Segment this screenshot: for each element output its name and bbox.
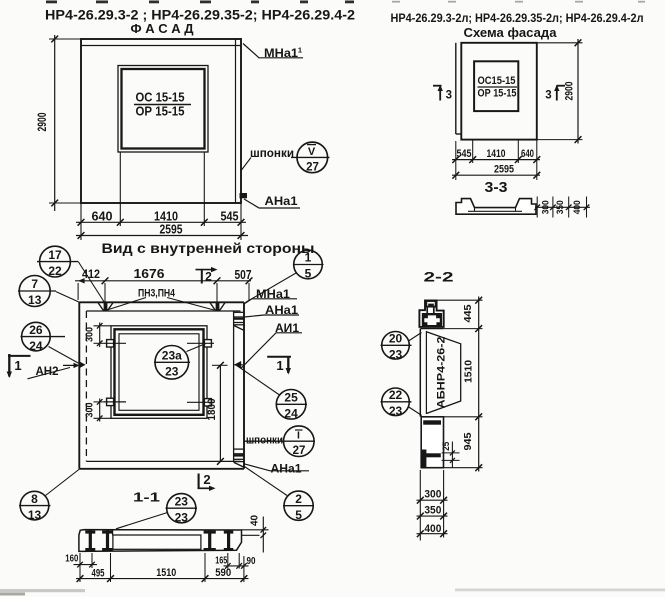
svg-text:ОС 15-15: ОС 15-15 xyxy=(136,90,185,105)
svg-text:300: 300 xyxy=(85,402,96,417)
svg-text:шпонки: шпонки xyxy=(250,148,294,160)
svg-text:І: І xyxy=(297,430,300,442)
svg-text:640: 640 xyxy=(92,208,113,223)
svg-text:25: 25 xyxy=(441,441,452,451)
svg-text:165: 165 xyxy=(215,555,227,566)
svg-text:Вид с внутренней стороны: Вид с внутренней стороны xyxy=(102,240,315,256)
svg-text:22: 22 xyxy=(48,264,62,278)
svg-text:1410: 1410 xyxy=(487,148,506,160)
svg-text:2900: 2900 xyxy=(564,82,576,101)
svg-text:160: 160 xyxy=(65,553,78,564)
svg-text:300: 300 xyxy=(84,327,95,342)
svg-text:АНа1: АНа1 xyxy=(265,194,298,208)
svg-text:90: 90 xyxy=(247,556,256,567)
svg-text:V: V xyxy=(308,146,316,158)
svg-text:400: 400 xyxy=(572,200,583,214)
svg-text:27: 27 xyxy=(306,161,319,173)
svg-text:640: 640 xyxy=(521,148,534,160)
svg-text:АБНР4-26-2: АБНР4-26-2 xyxy=(436,337,448,409)
svg-text:1676: 1676 xyxy=(134,266,165,281)
svg-text:13: 13 xyxy=(28,293,42,307)
svg-text:шпонки: шпонки xyxy=(246,434,283,446)
svg-text:40: 40 xyxy=(250,515,261,526)
svg-text:2: 2 xyxy=(295,492,302,506)
svg-text:23: 23 xyxy=(175,494,189,508)
svg-text:1: 1 xyxy=(276,358,283,373)
svg-text:300: 300 xyxy=(540,200,551,214)
svg-text:545: 545 xyxy=(457,148,472,160)
svg-text:300: 300 xyxy=(424,489,441,501)
svg-text:25: 25 xyxy=(284,391,298,405)
svg-text:23: 23 xyxy=(389,404,403,418)
svg-text:1800: 1800 xyxy=(206,399,218,421)
svg-text:23: 23 xyxy=(165,365,179,379)
svg-text:ОР 15-15: ОР 15-15 xyxy=(136,104,185,119)
svg-text:2: 2 xyxy=(205,270,212,284)
svg-text:Схема фасада: Схема фасада xyxy=(464,26,558,40)
svg-text:23: 23 xyxy=(175,510,189,524)
svg-text:22: 22 xyxy=(389,388,403,402)
svg-text:ПН3,ПН4: ПН3,ПН4 xyxy=(138,287,176,299)
svg-text:1510: 1510 xyxy=(156,567,176,579)
svg-text:3: 3 xyxy=(545,90,551,102)
svg-text:1410: 1410 xyxy=(154,208,178,223)
svg-text:Ф А С А Д: Ф А С А Д xyxy=(131,21,195,36)
svg-text:24: 24 xyxy=(29,339,43,353)
svg-text:1: 1 xyxy=(298,46,302,55)
svg-text:26: 26 xyxy=(29,323,43,337)
svg-text:23а: 23а xyxy=(162,349,182,363)
svg-text:445: 445 xyxy=(462,304,474,322)
svg-text:2: 2 xyxy=(203,472,210,487)
svg-text:1: 1 xyxy=(305,251,312,265)
svg-text:7: 7 xyxy=(31,277,38,291)
svg-text:2-2: 2-2 xyxy=(424,269,454,285)
svg-text:ОР 15-15: ОР 15-15 xyxy=(478,88,517,100)
svg-text:23: 23 xyxy=(389,348,403,362)
svg-text:24: 24 xyxy=(284,407,298,421)
svg-text:350: 350 xyxy=(424,505,441,517)
svg-text:1510: 1510 xyxy=(463,360,475,383)
svg-text:НР4-26.29.3-2л; НР4-26.29.35-2: НР4-26.29.3-2л; НР4-26.29.35-2л; НР4-26.… xyxy=(391,11,644,25)
svg-text:27: 27 xyxy=(293,445,306,457)
svg-text:1: 1 xyxy=(14,358,21,373)
svg-text:5: 5 xyxy=(305,267,312,281)
svg-text:5: 5 xyxy=(295,508,302,522)
svg-text:17: 17 xyxy=(48,248,62,262)
svg-text:8: 8 xyxy=(31,492,38,506)
svg-text:20: 20 xyxy=(389,332,403,346)
svg-text:400: 400 xyxy=(424,523,441,535)
svg-text:1-1: 1-1 xyxy=(133,489,160,504)
svg-text:13: 13 xyxy=(28,508,42,522)
svg-text:945: 945 xyxy=(462,432,474,450)
svg-text:3: 3 xyxy=(446,90,452,102)
svg-text:АНа1: АНа1 xyxy=(271,461,302,475)
svg-text:350: 350 xyxy=(555,200,566,214)
svg-text:590: 590 xyxy=(215,567,231,579)
svg-text:545: 545 xyxy=(221,208,239,223)
svg-text:2595: 2595 xyxy=(494,163,514,175)
svg-text:НР4-26.29.3-2 ; НР4-26.29.35-2: НР4-26.29.3-2 ; НР4-26.29.35-2; НР4-26.2… xyxy=(45,8,355,23)
svg-text:ОС15-15: ОС15-15 xyxy=(478,75,516,87)
svg-text:507: 507 xyxy=(235,268,252,282)
svg-text:2900: 2900 xyxy=(35,112,49,131)
svg-text:2595: 2595 xyxy=(160,223,183,237)
svg-text:3-3: 3-3 xyxy=(485,180,508,196)
svg-text:495: 495 xyxy=(92,567,105,579)
